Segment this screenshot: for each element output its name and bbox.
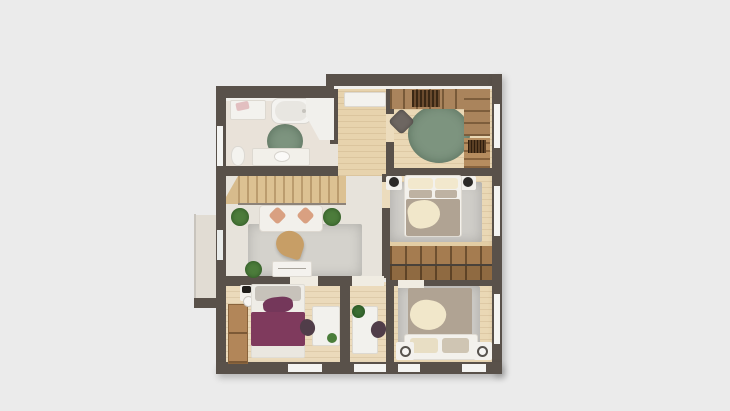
bedroom-bottom-lamp-right — [477, 346, 488, 357]
dressing-round-rug — [408, 105, 470, 163]
closet-lower-row — [390, 266, 492, 280]
office-door-threshold — [352, 276, 384, 286]
plant-right-of-sofa — [323, 208, 341, 226]
sideboard-handle — [278, 268, 306, 269]
bedroom-mid-pillow-left — [408, 178, 433, 189]
kids-desk-plant — [327, 333, 337, 343]
bedroom-mid-pillow-right — [435, 178, 458, 189]
bedroom-bottom-door-threshold — [398, 280, 424, 288]
balcony-door — [217, 230, 223, 260]
wall-balcony-stub — [194, 298, 220, 308]
kids-lamp — [242, 286, 251, 293]
window-bathroom-left — [217, 126, 223, 166]
toilet — [231, 146, 245, 166]
window-right-bedroom-bottom — [494, 294, 500, 344]
bedroom-mid-lamp-left — [389, 177, 399, 187]
stairs — [238, 176, 346, 204]
wall-top-bathroom — [216, 86, 338, 98]
kids-wardrobe — [228, 304, 248, 364]
bedroom-bottom-lamp-left — [400, 346, 411, 357]
bedroom-mid-lamp-right — [463, 177, 473, 187]
bedroom-bottom-pillow-right — [442, 338, 469, 353]
kids-duvet — [251, 312, 305, 346]
wall-bathroom-bottom — [216, 166, 338, 176]
sofa — [259, 205, 323, 232]
dressing-wardrobe-right — [464, 89, 490, 136]
dressing-hanging-clothes — [412, 90, 440, 107]
wall-top-right-wing — [326, 74, 502, 86]
dressing-slatted-rack — [468, 140, 486, 153]
bedroom-mid-cushion-left — [409, 190, 432, 198]
vanity-sink — [274, 151, 290, 162]
tv-sideboard — [272, 261, 312, 277]
window-bottom-office — [354, 364, 386, 372]
window-right-dressing — [494, 104, 500, 148]
bathtub-drain — [302, 109, 306, 113]
bedroom-mid-cushion-right — [435, 190, 457, 198]
floor-plan — [0, 0, 730, 411]
plant-left-of-sofa — [231, 208, 249, 226]
wall-hall-bedroom-lower — [382, 208, 390, 278]
hallway-bench — [344, 92, 386, 107]
office-plant — [352, 305, 365, 318]
kids-bed-foot — [252, 346, 304, 357]
wall-kids-office — [340, 282, 350, 362]
bedroom-bottom-pillow-left — [410, 338, 438, 353]
wall-office-bedroom — [386, 282, 394, 362]
window-right-bedroom-mid — [494, 186, 500, 236]
bathroom-door-threshold — [330, 144, 338, 166]
window-bottom-bedroom-left — [398, 364, 420, 372]
plant-by-sideboard — [245, 261, 262, 278]
window-bottom-bedroom-right — [462, 364, 486, 372]
closet-upper-row — [390, 246, 492, 264]
window-bottom-kids — [288, 364, 322, 372]
